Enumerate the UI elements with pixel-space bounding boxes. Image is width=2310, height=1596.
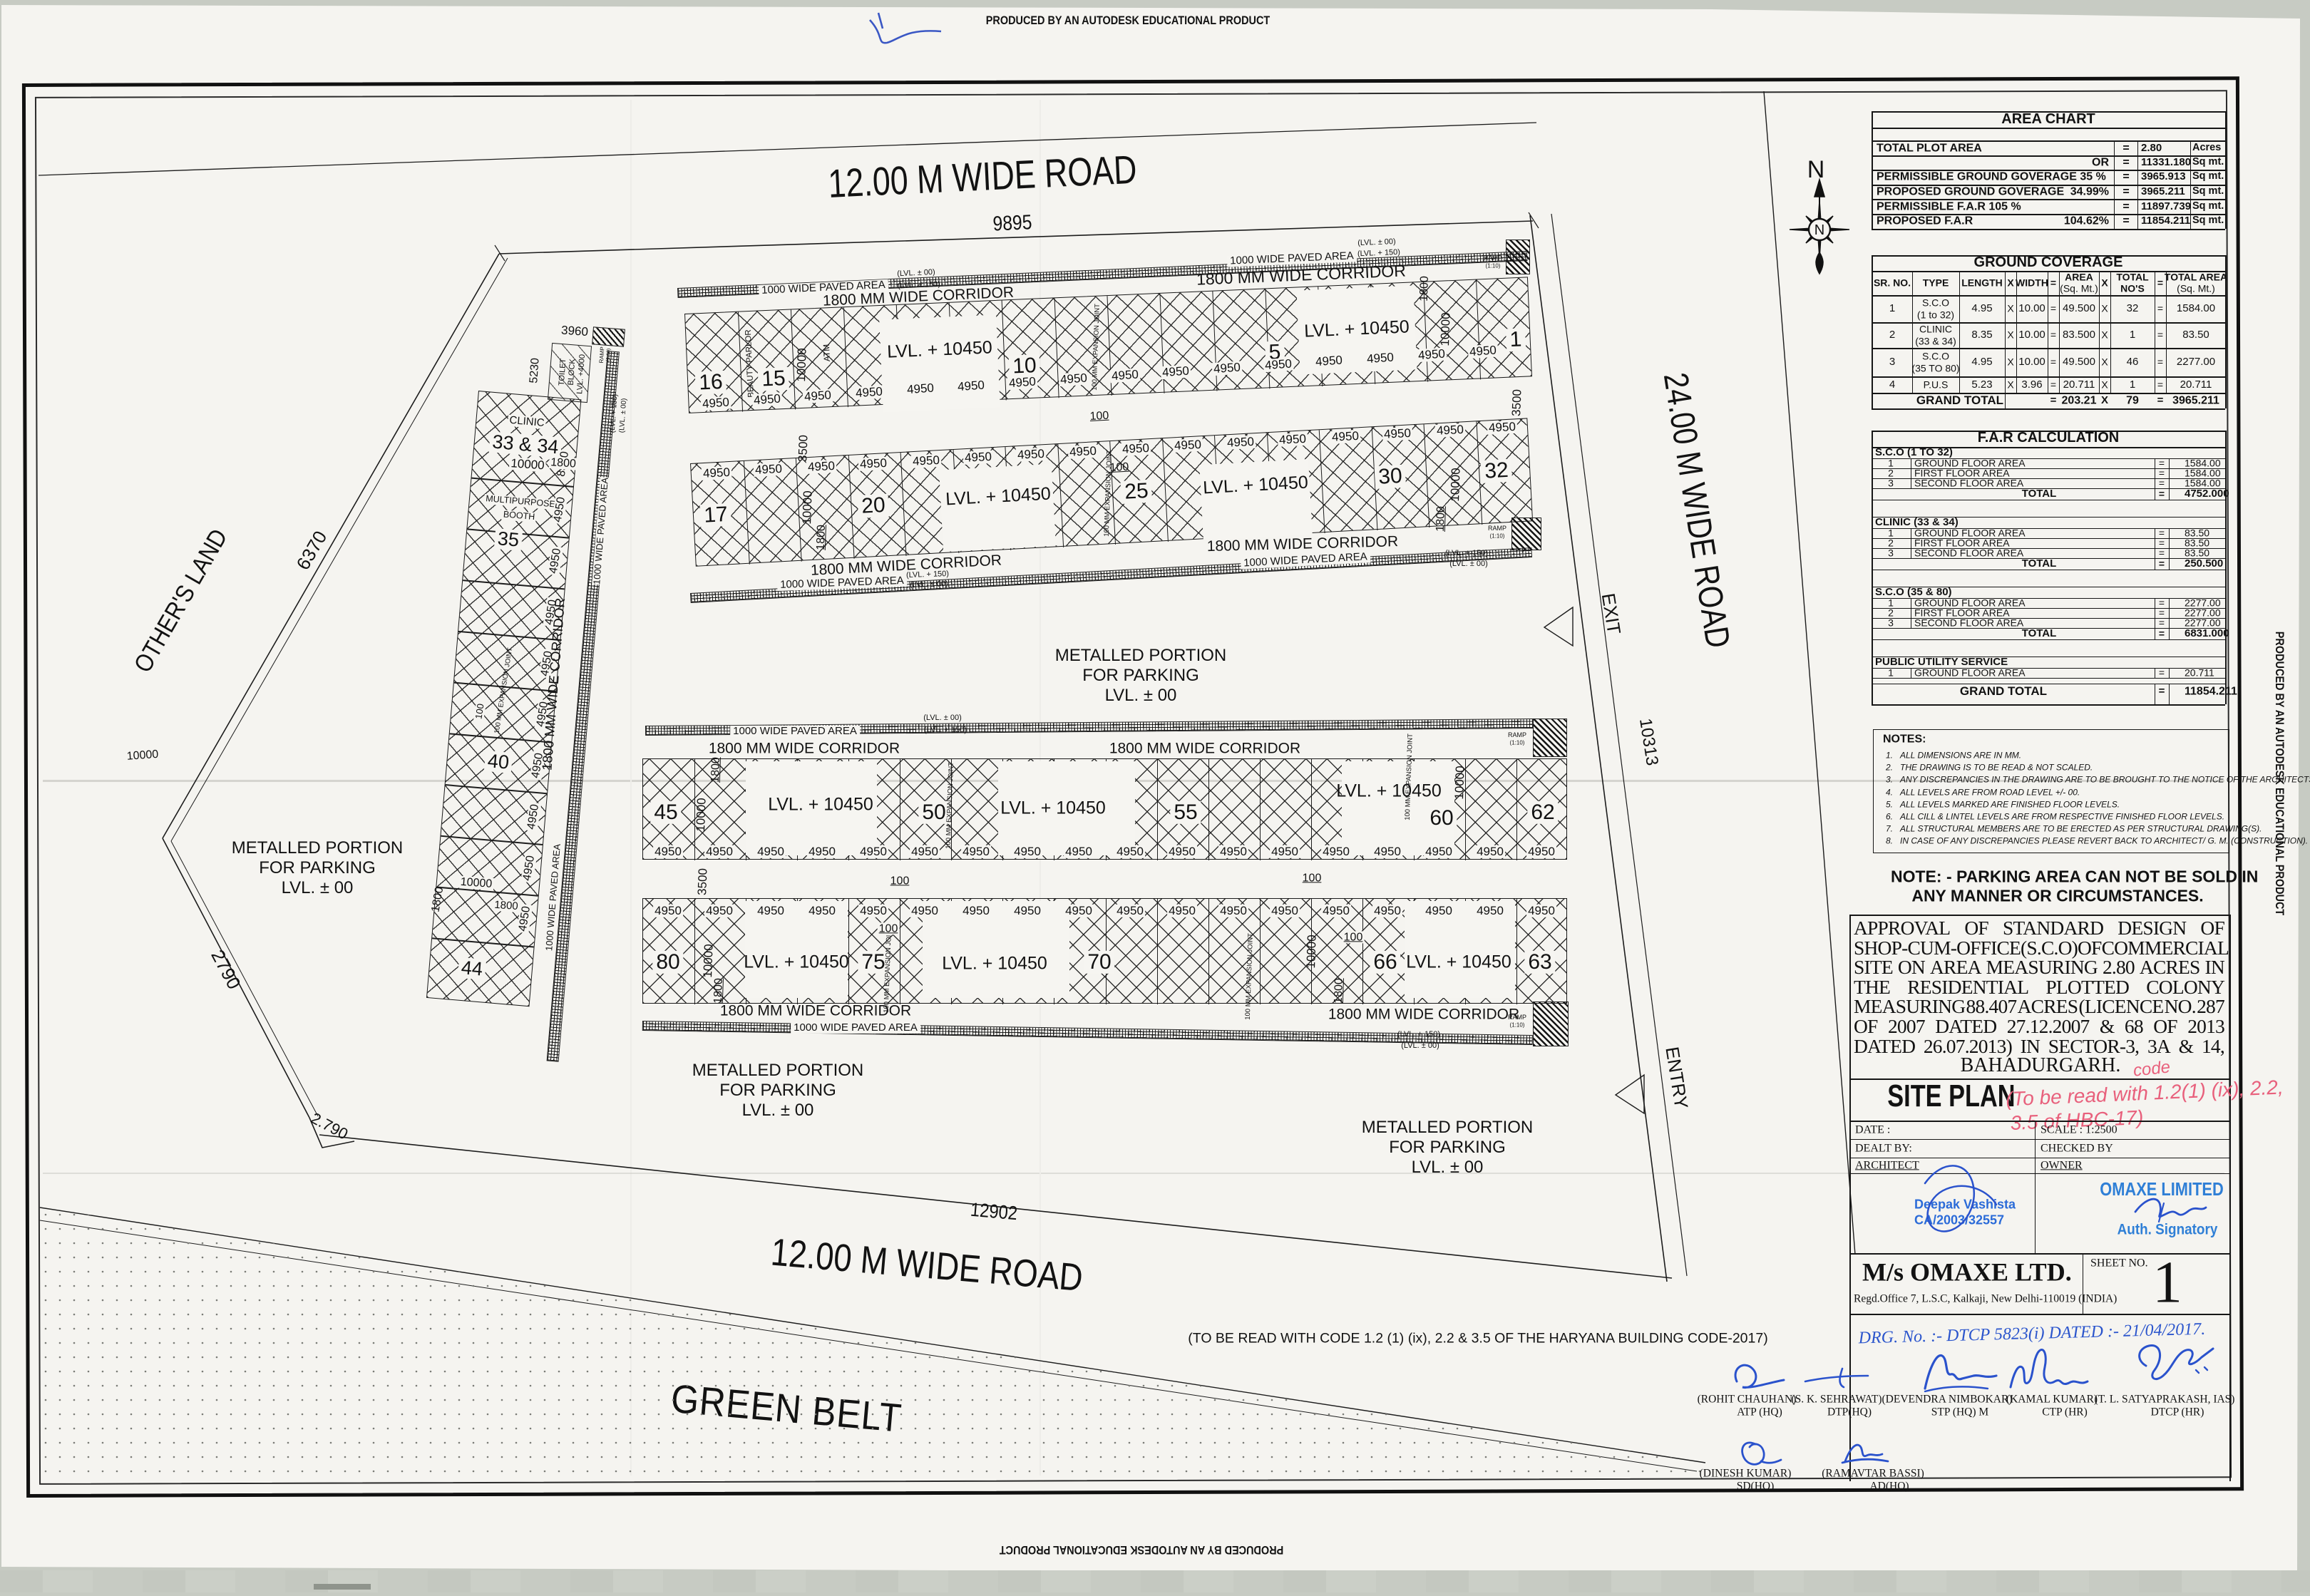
- svg-text:N: N: [1814, 222, 1824, 238]
- svg-text:N: N: [1807, 156, 1825, 183]
